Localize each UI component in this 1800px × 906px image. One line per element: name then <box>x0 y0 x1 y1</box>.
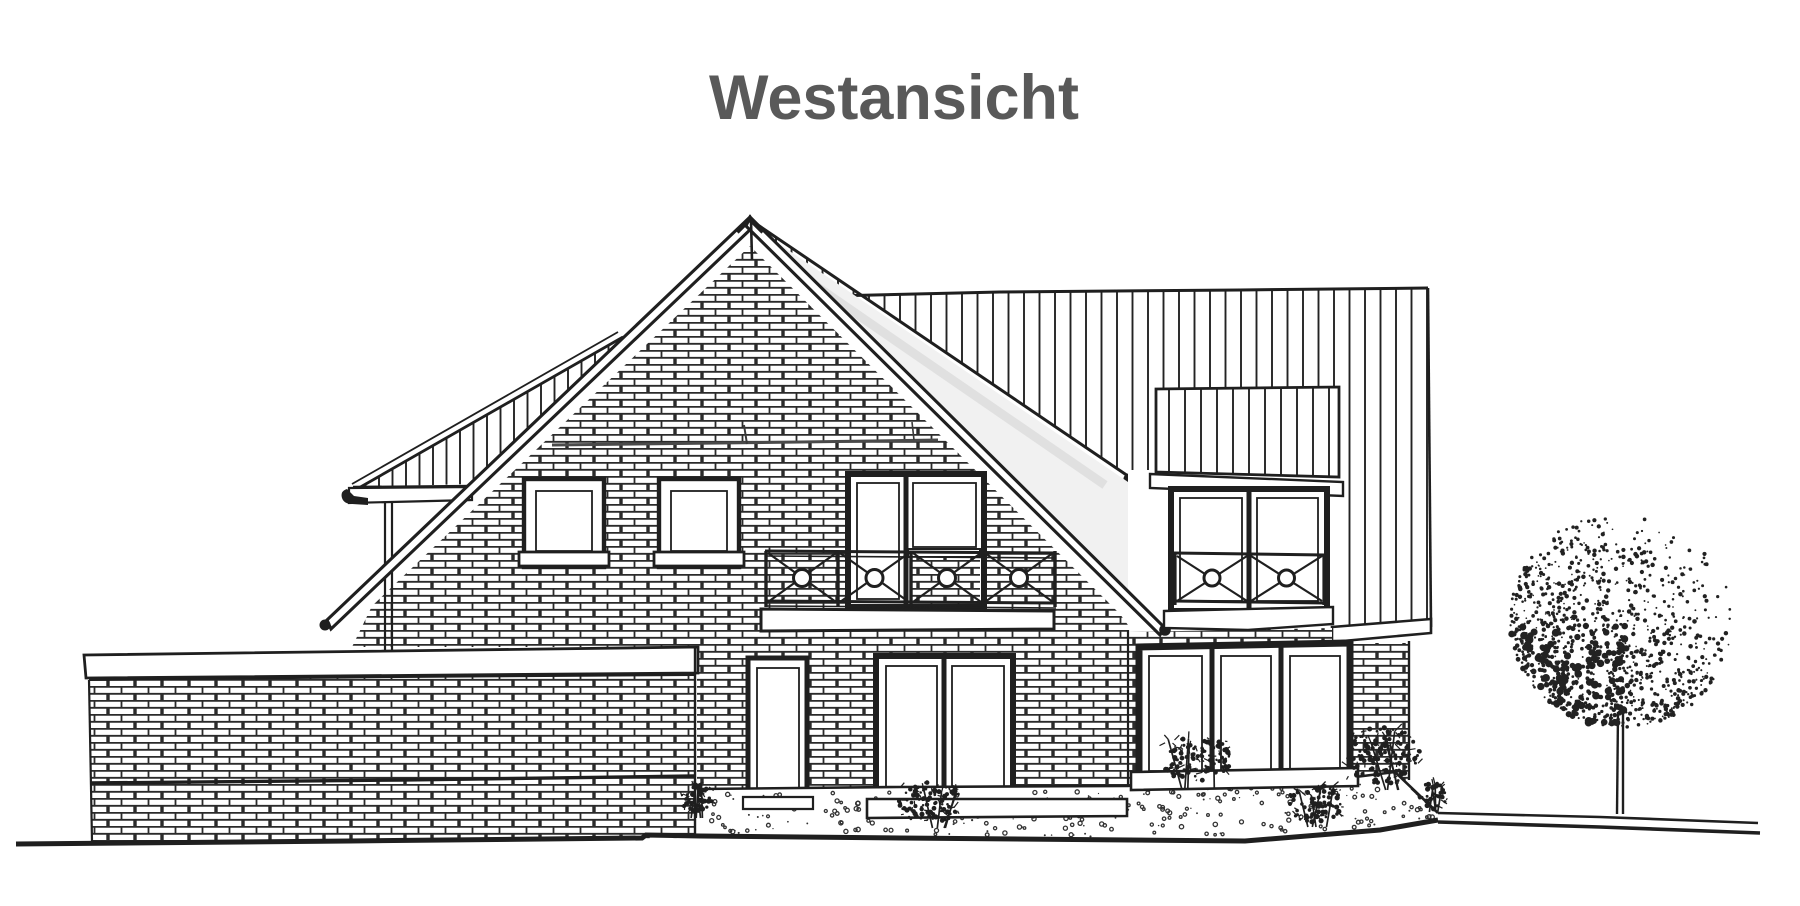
svg-text:Westansicht: Westansicht <box>709 63 1079 133</box>
